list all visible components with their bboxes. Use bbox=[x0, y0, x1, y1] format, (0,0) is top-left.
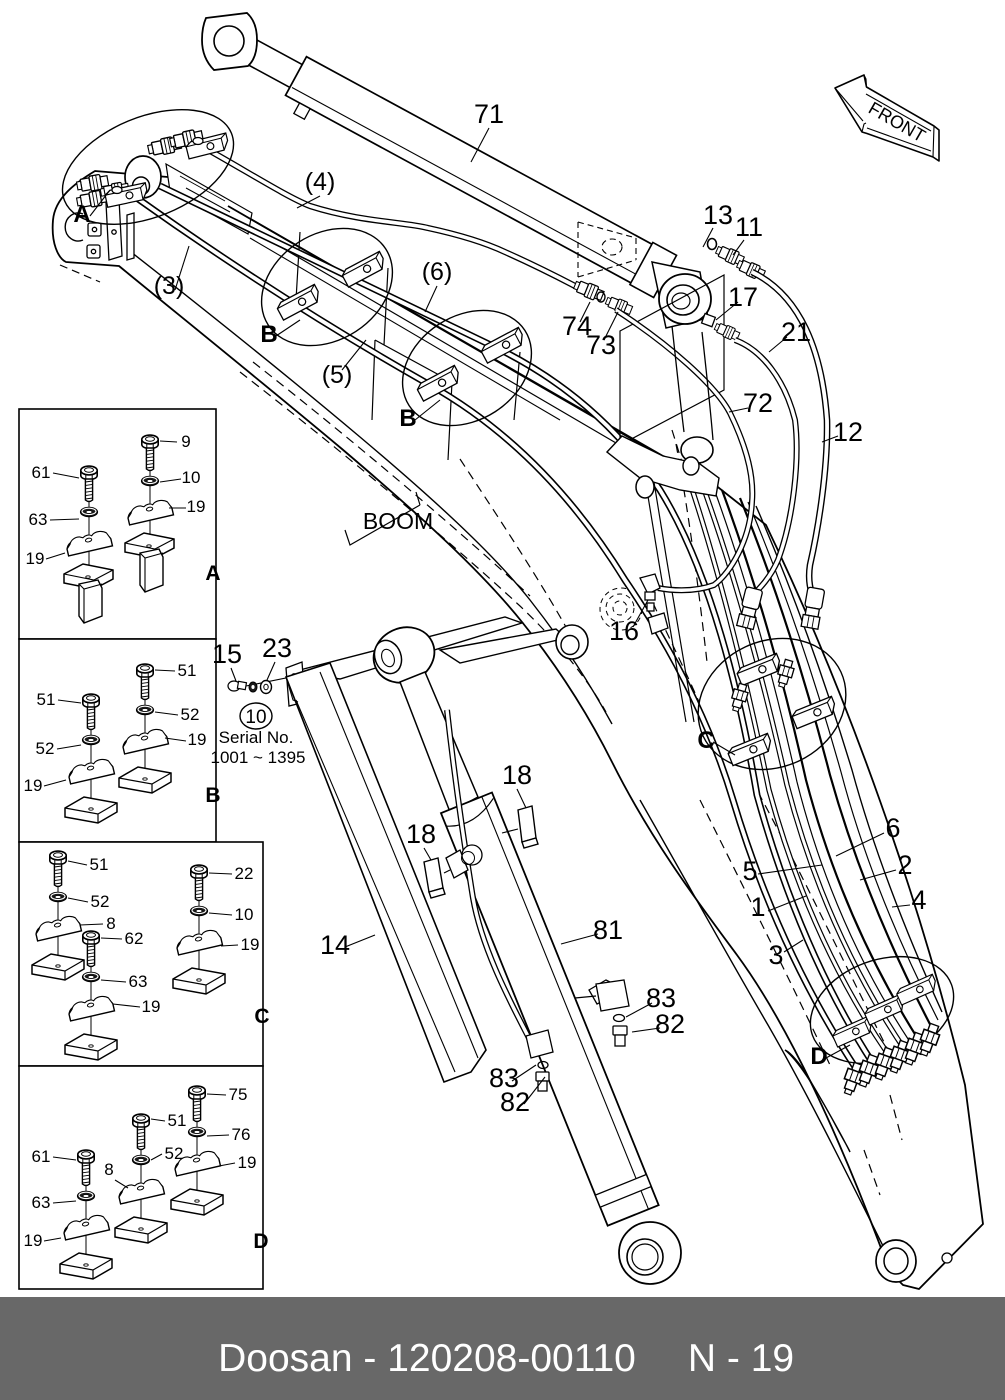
svg-text:19: 19 bbox=[142, 997, 161, 1016]
svg-text:82: 82 bbox=[655, 1009, 685, 1039]
svg-text:71: 71 bbox=[474, 99, 504, 129]
svg-text:18: 18 bbox=[502, 760, 532, 790]
svg-text:1001 ~ 1395: 1001 ~ 1395 bbox=[210, 748, 305, 767]
svg-text:10: 10 bbox=[235, 905, 254, 924]
svg-text:19: 19 bbox=[24, 776, 43, 795]
svg-text:(4): (4) bbox=[305, 168, 336, 196]
svg-text:51: 51 bbox=[168, 1111, 187, 1130]
svg-text:72: 72 bbox=[743, 388, 773, 418]
svg-text:19: 19 bbox=[187, 497, 206, 516]
svg-text:10: 10 bbox=[182, 468, 201, 487]
svg-text:N - 19: N - 19 bbox=[688, 1337, 794, 1380]
svg-text:B: B bbox=[399, 405, 416, 432]
svg-text:12: 12 bbox=[833, 417, 863, 447]
svg-text:B: B bbox=[260, 321, 277, 348]
svg-text:D: D bbox=[810, 1043, 827, 1070]
svg-text:3: 3 bbox=[768, 940, 783, 970]
svg-text:10: 10 bbox=[245, 707, 266, 728]
svg-text:16: 16 bbox=[609, 616, 639, 646]
svg-text:22: 22 bbox=[235, 864, 254, 883]
svg-text:A: A bbox=[205, 562, 220, 585]
svg-text:52: 52 bbox=[36, 739, 55, 758]
svg-text:4: 4 bbox=[911, 885, 926, 915]
svg-text:1: 1 bbox=[750, 892, 765, 922]
svg-text:14: 14 bbox=[320, 930, 350, 960]
svg-text:76: 76 bbox=[232, 1125, 251, 1144]
svg-text:C: C bbox=[254, 1005, 269, 1028]
svg-text:81: 81 bbox=[593, 915, 623, 945]
svg-text:61: 61 bbox=[32, 463, 51, 482]
svg-text:13: 13 bbox=[703, 200, 733, 230]
svg-text:19: 19 bbox=[24, 1231, 43, 1250]
svg-text:19: 19 bbox=[26, 549, 45, 568]
svg-text:19: 19 bbox=[188, 730, 207, 749]
svg-text:(6): (6) bbox=[422, 258, 453, 286]
svg-text:2: 2 bbox=[897, 850, 912, 880]
svg-text:63: 63 bbox=[129, 972, 148, 991]
svg-text:63: 63 bbox=[32, 1193, 51, 1212]
svg-text:9: 9 bbox=[181, 432, 190, 451]
svg-text:B: B bbox=[205, 784, 220, 807]
svg-text:19: 19 bbox=[238, 1153, 257, 1172]
svg-text:D: D bbox=[253, 1230, 268, 1253]
svg-text:51: 51 bbox=[90, 855, 109, 874]
svg-text:52: 52 bbox=[91, 892, 110, 911]
svg-text:63: 63 bbox=[29, 510, 48, 529]
svg-text:A: A bbox=[73, 201, 90, 228]
svg-text:6: 6 bbox=[885, 813, 900, 843]
svg-text:BOOM: BOOM bbox=[363, 508, 433, 534]
svg-text:8: 8 bbox=[106, 914, 115, 933]
svg-text:23: 23 bbox=[262, 633, 292, 663]
svg-text:19: 19 bbox=[241, 935, 260, 954]
svg-text:(5): (5) bbox=[322, 361, 353, 389]
svg-text:C: C bbox=[697, 727, 714, 754]
svg-text:Doosan - 120208-00110: Doosan - 120208-00110 bbox=[218, 1337, 636, 1380]
svg-text:52: 52 bbox=[165, 1144, 184, 1163]
svg-text:11: 11 bbox=[735, 212, 763, 242]
svg-text:17: 17 bbox=[728, 282, 758, 312]
svg-text:52: 52 bbox=[181, 705, 200, 724]
svg-text:15: 15 bbox=[212, 639, 242, 669]
svg-text:5: 5 bbox=[742, 856, 757, 886]
svg-text:8: 8 bbox=[104, 1160, 113, 1179]
svg-text:51: 51 bbox=[37, 690, 56, 709]
svg-text:Serial No.: Serial No. bbox=[219, 728, 294, 747]
svg-text:62: 62 bbox=[125, 929, 144, 948]
svg-text:61: 61 bbox=[32, 1147, 51, 1166]
svg-text:51: 51 bbox=[178, 661, 197, 680]
svg-text:73: 73 bbox=[586, 330, 616, 360]
svg-text:21: 21 bbox=[781, 317, 811, 347]
svg-text:75: 75 bbox=[229, 1085, 248, 1104]
svg-text:18: 18 bbox=[406, 819, 436, 849]
